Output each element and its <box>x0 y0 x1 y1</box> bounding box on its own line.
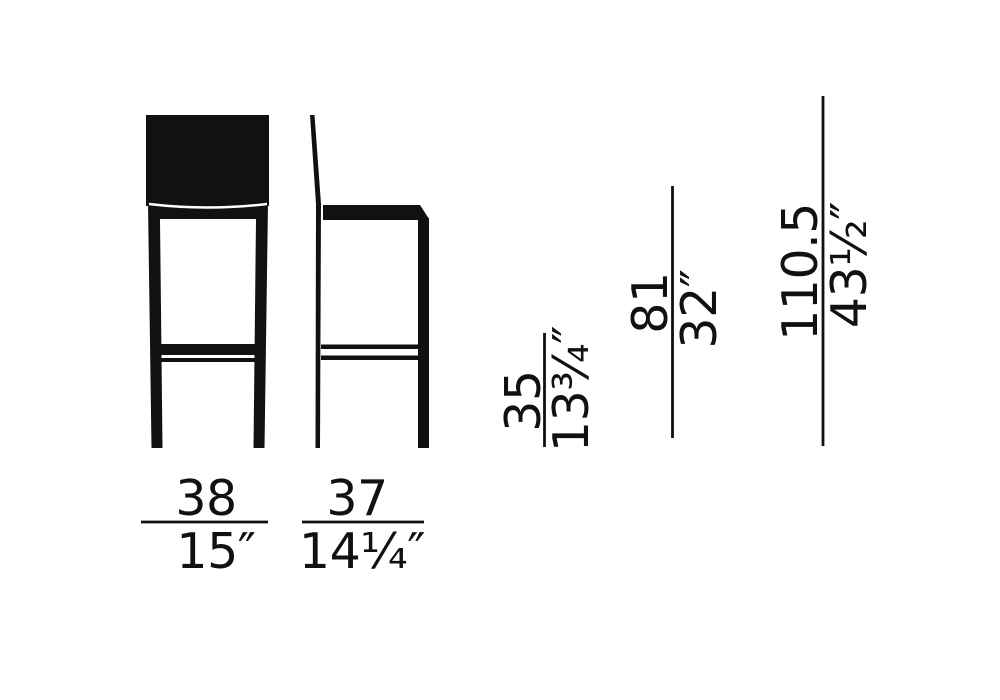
dimension-first-height: 35 13¾″ <box>495 326 600 452</box>
side-front-leg <box>316 204 322 448</box>
dimension-overall-height: 110.5 43½″ <box>772 96 878 446</box>
front-seat-and-legs <box>148 203 268 448</box>
metric-label: 38 <box>175 470 236 527</box>
dimension-side-depth: 37 14¼″ <box>299 470 425 580</box>
side-view <box>310 115 430 448</box>
side-backrest-line <box>310 115 321 204</box>
drawing-canvas: 38 15″ 37 14¼″ 35 13¾″ 81 32″ 110.5 43½″ <box>0 0 1000 700</box>
side-seat-and-rear-leg <box>323 205 429 448</box>
front-stretcher-bar <box>160 344 256 355</box>
dimension-second-height: 81 32″ <box>622 186 728 438</box>
metric-label: 37 <box>326 470 387 527</box>
imperial-label: 43½″ <box>821 202 878 328</box>
imperial-label: 14¼″ <box>299 523 425 580</box>
front-stretcher-line <box>160 358 256 362</box>
imperial-label: 13¾″ <box>543 326 600 452</box>
side-stretcher-line-lower <box>321 356 418 361</box>
side-stretcher-line-upper <box>321 345 418 350</box>
imperial-label: 15″ <box>176 523 255 580</box>
front-backrest <box>146 115 269 206</box>
dimension-front-width: 38 15″ <box>141 470 268 580</box>
imperial-label: 32″ <box>671 269 728 348</box>
stool-dimension-diagram: 38 15″ 37 14¼″ 35 13¾″ 81 32″ 110.5 43½″ <box>0 0 1000 700</box>
front-view <box>146 115 269 448</box>
